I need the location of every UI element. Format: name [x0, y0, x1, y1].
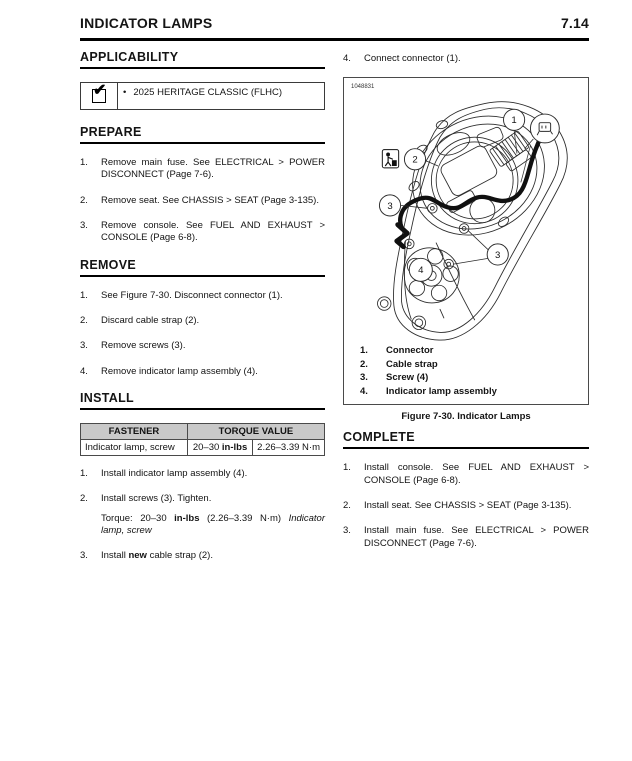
figure-7-30: 1048831 [343, 77, 589, 405]
step-text: Remove main fuse. See ELECTRICAL > POWER… [101, 157, 325, 182]
complete-step-3: 3. Install main fuse. See ELECTRICAL > P… [343, 525, 589, 550]
step-text: Install main fuse. See ELECTRICAL > POWE… [364, 525, 589, 550]
fastener-cell: Indicator lamp, screw [81, 440, 188, 456]
remove-step-1: 1. See Figure 7-30. Disconnect connector… [80, 290, 325, 302]
remove-step-3: 3. Remove screws (3). [80, 340, 325, 352]
section-heading-remove: REMOVE [80, 258, 325, 277]
callout-3-right-number: 3 [495, 250, 500, 261]
step-number: 3. [80, 220, 101, 245]
page-title: INDICATOR LAMPS [80, 15, 212, 31]
page-header: INDICATOR LAMPS 7.14 [80, 15, 589, 41]
prepare-step-1: 1. Remove main fuse. See ELECTRICAL > PO… [80, 157, 325, 182]
step-text: See Figure 7-30. Disconnect connector (1… [101, 290, 325, 302]
complete-step-1: 1. Install console. See FUEL AND EXHAUST… [343, 462, 589, 487]
step-text: Remove indicator lamp assembly (4). [101, 366, 325, 378]
callout-4: 4 [409, 259, 432, 282]
torque-table-header-row: FASTENER TORQUE VALUE [81, 424, 325, 440]
section-heading-prepare: PREPARE [80, 125, 325, 144]
torque-table-header-fastener: FASTENER [81, 424, 188, 440]
torque-spec-line: Torque: 20–30 in-lbs (2.26–3.39 N·m) Ind… [101, 513, 325, 538]
callout-3-left: 3 [379, 195, 400, 216]
remove-step-4: 4. Remove indicator lamp assembly (4). [80, 366, 325, 378]
callout-3-right: 3 [487, 244, 508, 265]
step-number: 4. [80, 366, 101, 378]
callout-2: 2 [404, 149, 425, 170]
right-column: 4. Connect connector (1). 1048831 [343, 50, 589, 576]
step-number: 3. [80, 340, 101, 352]
callout-1: 1 [504, 110, 525, 131]
applicability-check-cell: ✔ [81, 83, 118, 109]
section-heading-applicability: APPLICABILITY [80, 50, 325, 69]
step-text: Install indicator lamp assembly (4). [101, 468, 325, 480]
figure-legend: 1. Connector 2. Cable strap 3. Screw (4)… [344, 342, 588, 400]
step-number: 2. [80, 195, 101, 207]
section-heading-complete: COMPLETE [343, 430, 589, 449]
step-number: 2. [343, 500, 364, 512]
checked-checkbox-icon: ✔ [92, 89, 106, 103]
torque-table-row: Indicator lamp, screw 20–30 in-lbs 2.26–… [81, 440, 325, 456]
install-step-1: 1. Install indicator lamp assembly (4). [80, 468, 325, 480]
step-text: Remove screws (3). [101, 340, 325, 352]
callout-2-number: 2 [412, 155, 417, 166]
step-text: Remove seat. See CHASSIS > SEAT (Page 3-… [101, 195, 325, 207]
bullet-icon: • [123, 87, 126, 98]
callout-4-number: 4 [418, 266, 424, 277]
install-step-3: 3. Install new cable strap (2). [80, 550, 325, 562]
callout-1-number: 1 [511, 116, 516, 127]
step-number: 1. [80, 290, 101, 302]
step-number: 2. [80, 315, 101, 327]
torque-table: FASTENER TORQUE VALUE Indicator lamp, sc… [80, 423, 325, 456]
step-text: Install screws (3). Tighten. Torque: 20–… [101, 493, 325, 537]
install-step-2: 2. Install screws (3). Tighten. Torque: … [80, 493, 325, 537]
legend-item-connector: 1. Connector [360, 344, 584, 357]
prepare-step-2: 2. Remove seat. See CHASSIS > SEAT (Page… [80, 195, 325, 207]
step-number: 1. [80, 468, 101, 480]
remove-step-2: 2. Discard cable strap (2). [80, 315, 325, 327]
discard-cable-strap-icon [382, 150, 398, 168]
page-number: 7.14 [561, 15, 589, 31]
legend-item-screw: 3. Screw (4) [360, 371, 584, 384]
torque-inlbs-cell: 20–30 in-lbs [187, 440, 252, 456]
console-indicator-lamps-diagram: 1 2 3 3 4 [347, 90, 585, 342]
cable-strap-shape [397, 225, 408, 247]
torque-table-header-value: TORQUE VALUE [187, 424, 324, 440]
step-number: 3. [80, 550, 101, 562]
section-heading-install: INSTALL [80, 391, 325, 410]
step-number: 4. [343, 53, 364, 65]
left-column: APPLICABILITY ✔ • 2025 HERITAGE CLASSIC … [80, 50, 325, 576]
step-text: Install new cable strap (2). [101, 550, 325, 562]
step-number: 1. [343, 462, 364, 487]
connect-connector-step: 4. Connect connector (1). [343, 53, 589, 65]
step-number: 1. [80, 157, 101, 182]
model-name: 2025 HERITAGE CLASSIC (FLHC) [133, 87, 282, 98]
step-text: Install seat. See CHASSIS > SEAT (Page 3… [364, 500, 589, 512]
step-number: 3. [343, 525, 364, 550]
complete-step-2: 2. Install seat. See CHASSIS > SEAT (Pag… [343, 500, 589, 512]
two-column-layout: APPLICABILITY ✔ • 2025 HERITAGE CLASSIC … [80, 50, 589, 576]
applicability-model-cell: • 2025 HERITAGE CLASSIC (FLHC) [118, 83, 324, 109]
applicability-table: ✔ • 2025 HERITAGE CLASSIC (FLHC) [80, 82, 325, 110]
step-text: Discard cable strap (2). [101, 315, 325, 327]
screw-shapes [404, 204, 468, 269]
step-text: Install console. See FUEL AND EXHAUST > … [364, 462, 589, 487]
callout-3-left-number: 3 [387, 201, 392, 212]
legend-item-cable-strap: 2. Cable strap [360, 358, 584, 371]
step-number: 2. [80, 493, 101, 537]
manual-page: INDICATOR LAMPS 7.14 APPLICABILITY ✔ • 2… [0, 0, 632, 576]
figure-caption: Figure 7-30. Indicator Lamps [343, 411, 589, 422]
console-inner-shell [401, 108, 559, 333]
torque-nm-cell: 2.26–3.39 N·m [253, 440, 325, 456]
grommet [378, 297, 391, 310]
grommet [412, 316, 425, 329]
step-text: Connect connector (1). [364, 53, 589, 65]
connector-detail-circle [530, 114, 559, 143]
legend-item-indicator-lamp-assembly: 4. Indicator lamp assembly [360, 385, 584, 398]
step-text: Remove console. See FUEL AND EXHAUST > C… [101, 220, 325, 245]
prepare-step-3: 3. Remove console. See FUEL AND EXHAUST … [80, 220, 325, 245]
